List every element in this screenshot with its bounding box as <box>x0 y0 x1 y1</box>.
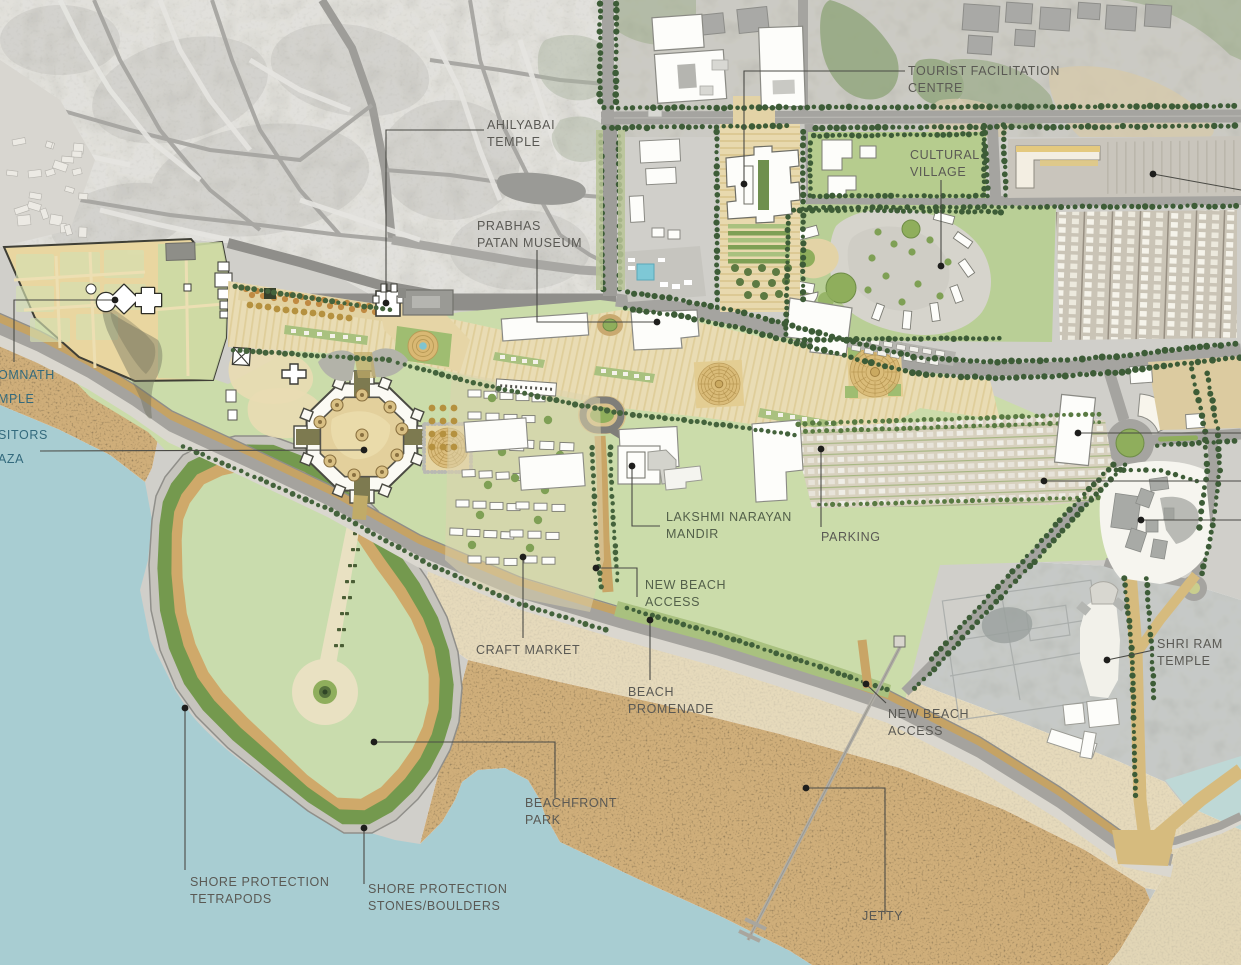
svg-text:CRAFT MARKET: CRAFT MARKET <box>476 643 580 657</box>
svg-text:PARKING: PARKING <box>821 530 881 544</box>
svg-text:JETTY: JETTY <box>862 909 903 923</box>
